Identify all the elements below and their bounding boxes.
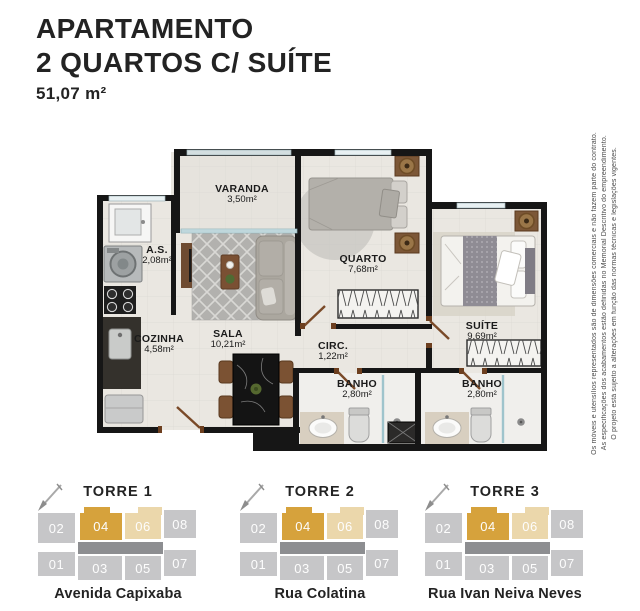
- tower-1-unit-01: 01: [38, 552, 75, 576]
- shaft: [388, 422, 418, 443]
- tower-2-unit-07: 07: [366, 550, 398, 576]
- room-label-varanda: VARANDA 3,50m²: [215, 183, 269, 206]
- tower-3-street: Rua Ivan Neiva Neves: [405, 586, 605, 602]
- tower-1-diagram: 02 04 06 08 01 03 05 07: [38, 507, 198, 577]
- quarto-nightstand-1: [395, 156, 419, 176]
- tower-1-street: Avenida Capixaba: [18, 586, 218, 602]
- tower-3-unit-04: 04: [467, 513, 509, 540]
- tv-console: [181, 243, 192, 288]
- tower-3-unit-03: 03: [465, 556, 509, 580]
- tower-1-unit-04: 04: [80, 513, 122, 540]
- tower-2-unit-04: 04: [282, 513, 324, 540]
- tower-2: TORRE 2 02 04 06 08 01 03 05 07 Rua Cola…: [220, 484, 420, 602]
- title-line-1: APARTAMENTO: [36, 12, 332, 46]
- tower-2-diagram: 02 04 06 08 01 03 05 07: [240, 507, 400, 577]
- room-label-quarto: QUARTO 7,68m²: [339, 253, 386, 276]
- apartment-area: 51,07 m²: [36, 84, 332, 104]
- tower-3-unit-05: 05: [512, 556, 548, 580]
- title-line-2: 2 QUARTOS C/ SUÍTE: [36, 46, 332, 80]
- suite-nightstand: [515, 211, 538, 231]
- banho2-toilet: [471, 411, 491, 442]
- room-label-sala: SALA 10,21m²: [211, 328, 246, 351]
- tower-2-unit-05: 05: [327, 556, 363, 580]
- fridge: [105, 395, 143, 423]
- room-label-suite: SUÍTE 9,69m²: [466, 320, 498, 343]
- tower-1-unit-06: 06: [125, 513, 161, 539]
- tower-2-unit-03: 03: [280, 556, 324, 580]
- tower-2-unit-02: 02: [240, 513, 277, 543]
- suite-bed: [441, 236, 535, 306]
- tower-1: TORRE 1 02 04 06 08 01 03 05 07 Avenida …: [18, 484, 218, 602]
- page-title: APARTAMENTO 2 QUARTOS C/ SUÍTE 51,07 m²: [36, 12, 332, 104]
- tower-3-corridor: [465, 542, 550, 554]
- sofa: [256, 236, 297, 320]
- tower-3: TORRE 3 02 04 06 08 01 03 05 07 Rua Ivan…: [405, 484, 605, 602]
- tower-3-unit-01: 01: [425, 552, 462, 576]
- tower-1-unit-05: 05: [125, 556, 161, 580]
- room-label-banho1: BANHO 2,80m²: [337, 378, 377, 401]
- tower-1-unit-07: 07: [164, 550, 196, 576]
- tower-1-unit-02: 02: [38, 513, 75, 543]
- stove: [104, 286, 136, 314]
- suite-wardrobe: [467, 340, 541, 366]
- laundry-tank: [109, 204, 151, 242]
- tower-3-diagram: 02 04 06 08 01 03 05 07: [425, 507, 585, 577]
- quarto-wardrobe: [338, 290, 418, 318]
- room-label-banho2: BANHO 2,80m²: [462, 378, 502, 401]
- legal-disclaimer: Os móveis e utensílios representados são…: [591, 93, 618, 493]
- tower-2-unit-08: 08: [366, 510, 398, 538]
- coffee-table: [221, 255, 239, 289]
- room-label-cozinha: COZINHA 4,58m²: [134, 333, 184, 356]
- tower-3-unit-02: 02: [425, 513, 462, 543]
- room-label-as: A.S. 2,08m²: [142, 244, 172, 267]
- tower-3-unit-08: 08: [551, 510, 583, 538]
- disclaimer-line-2: As especificações dos acabamentos estão …: [601, 135, 608, 450]
- tower-1-unit-03: 03: [78, 556, 122, 580]
- tower-2-unit-06: 06: [327, 513, 363, 539]
- tower-1-unit-08: 08: [164, 510, 196, 538]
- disclaimer-line-3: O projeto está sujeito a alterações em f…: [611, 147, 618, 440]
- disclaimer-line-1: Os móveis e utensílios representados são…: [591, 132, 598, 455]
- towers-section: TORRE 1 02 04 06 08 01 03 05 07 Avenida …: [0, 484, 640, 611]
- floor-plan-drawing: [95, 140, 550, 462]
- quarto-bed: [309, 178, 407, 230]
- tower-2-unit-01: 01: [240, 552, 277, 576]
- tower-2-corridor: [280, 542, 365, 554]
- tower-2-street: Rua Colatina: [220, 586, 420, 602]
- floor-plan: VARANDA 3,50m² A.S. 2,08m² QUARTO 7,68m²…: [95, 140, 550, 462]
- quarto-nightstand-2: [395, 233, 419, 253]
- apartment-flyer: APARTAMENTO 2 QUARTOS C/ SUÍTE 51,07 m²: [0, 0, 640, 611]
- tower-1-corridor: [78, 542, 163, 554]
- tower-3-unit-06: 06: [512, 513, 548, 539]
- washing-machine: [104, 246, 142, 282]
- tower-3-unit-07: 07: [551, 550, 583, 576]
- room-label-circ: CIRC. 1,22m²: [318, 340, 348, 363]
- banho1-toilet: [349, 411, 369, 442]
